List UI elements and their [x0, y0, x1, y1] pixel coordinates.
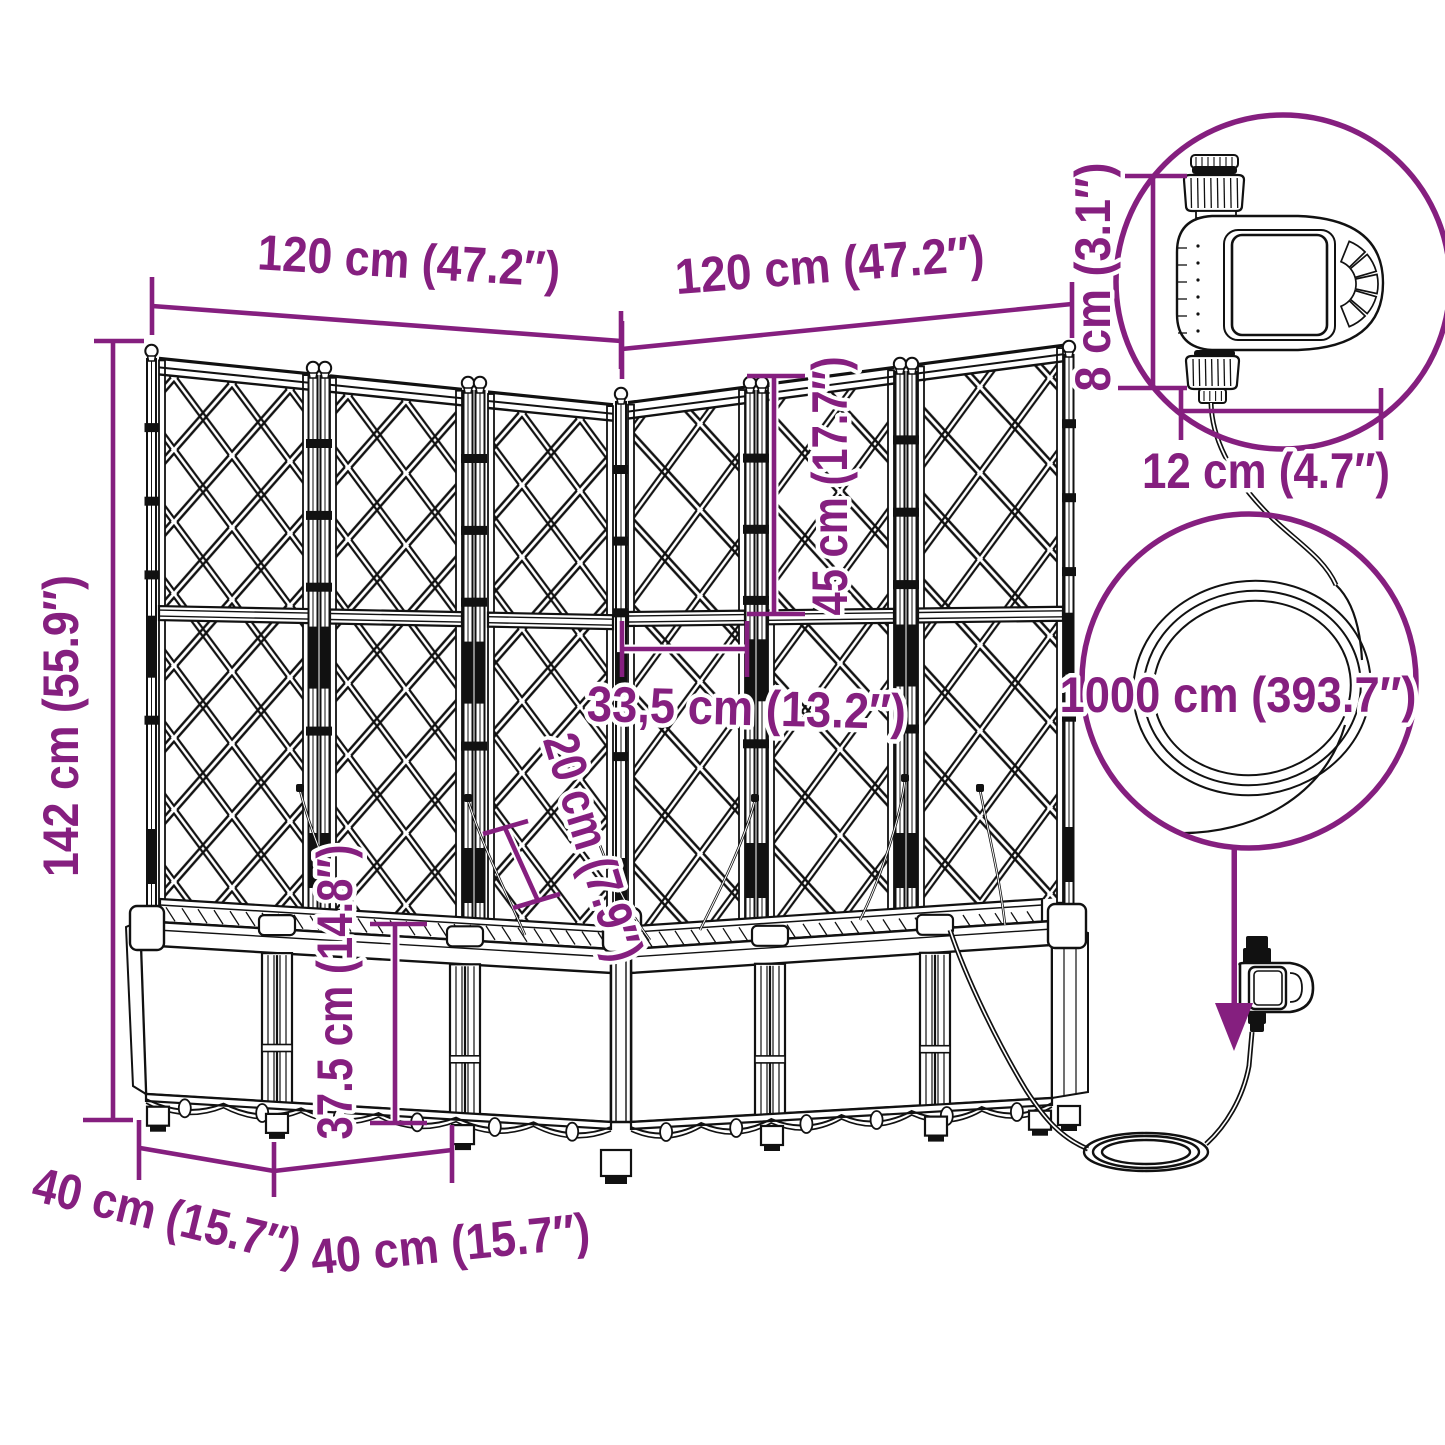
svg-text:142 cm (55.9″): 142 cm (55.9″) [33, 575, 89, 877]
svg-text:33,5 cm (13.2″): 33,5 cm (13.2″) [586, 676, 906, 740]
svg-text:8 cm (3.1″): 8 cm (3.1″) [1065, 163, 1121, 392]
svg-text:37.5 cm (14.8″): 37.5 cm (14.8″) [307, 845, 363, 1140]
svg-text:45 cm (17.7″): 45 cm (17.7″) [802, 357, 858, 616]
svg-text:12 cm (4.7″): 12 cm (4.7″) [1142, 443, 1390, 499]
svg-text:1000 cm (393.7″): 1000 cm (393.7″) [1060, 667, 1417, 723]
